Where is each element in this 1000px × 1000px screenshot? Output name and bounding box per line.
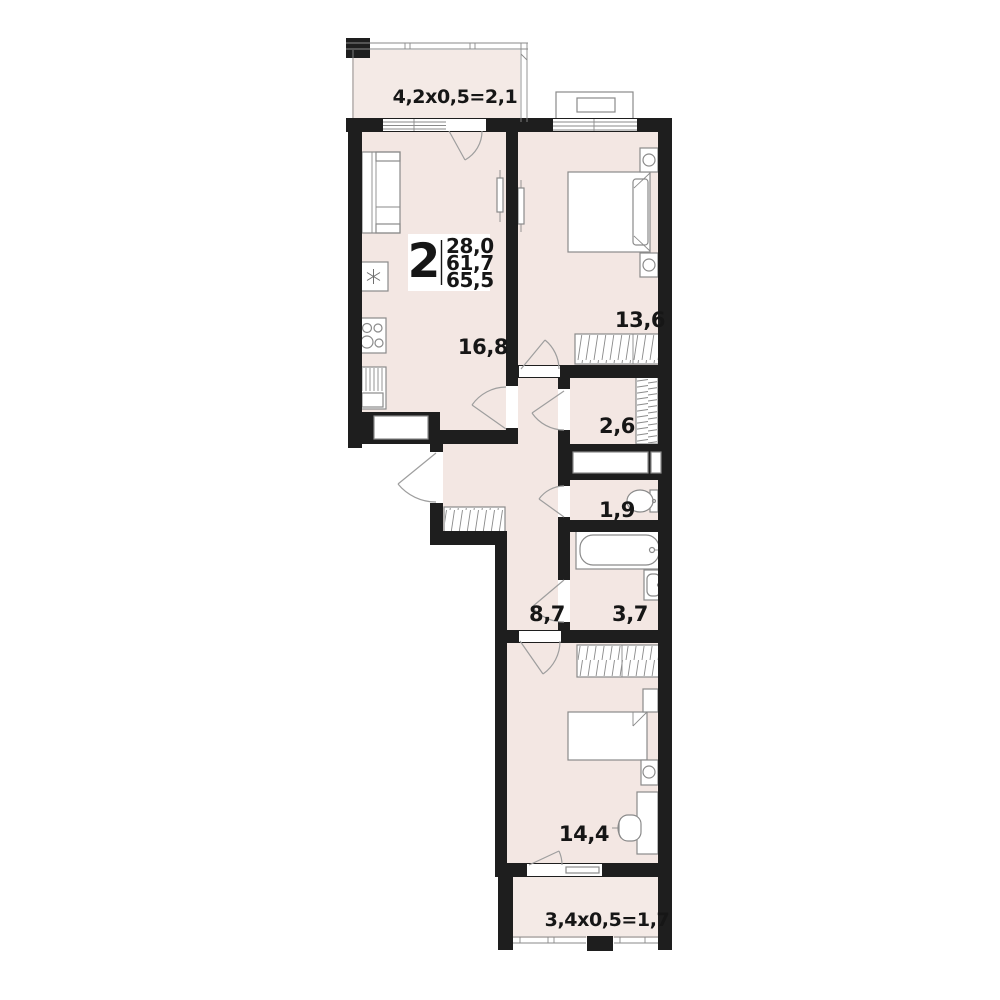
closet-shelving-icon xyxy=(636,377,658,444)
bedroom1-window-opening xyxy=(553,119,637,131)
duct-shaft xyxy=(573,452,648,473)
area-total: 65,5 xyxy=(446,268,494,292)
radiator-icon xyxy=(518,180,524,232)
kitchen-sink-icon xyxy=(359,367,386,409)
bedroom2-window-opening xyxy=(563,864,602,876)
room-count: 2 xyxy=(408,234,441,289)
hall-label: 8,7 xyxy=(529,602,565,626)
nightstand-icon xyxy=(640,253,658,277)
ac-unit-icon xyxy=(556,92,633,122)
balcony-bottom-label: 3,4x0,5=1,7 xyxy=(545,909,670,931)
floor-plan-svg: 4,2x0,5=2,1 16,8 13,6 2,6 1,9 8,7 3,7 14… xyxy=(0,0,1000,1000)
bedroom-2-label: 14,4 xyxy=(559,822,609,846)
floor-plan-canvas: 4,2x0,5=2,1 16,8 13,6 2,6 1,9 8,7 3,7 14… xyxy=(0,0,1000,1000)
bedroom2-balcony-door-opening xyxy=(527,864,563,876)
stove-icon xyxy=(359,318,386,353)
wardrobe-icon xyxy=(575,334,665,364)
nightstand-icon xyxy=(641,760,658,785)
bedroom2-door-opening xyxy=(519,631,561,642)
duct-shaft xyxy=(651,452,661,473)
fridge-icon xyxy=(359,262,388,291)
double-bed-icon xyxy=(568,172,650,252)
wardrobe-icon xyxy=(577,645,663,677)
entrance-door-opening xyxy=(430,452,443,503)
closet-label: 2,6 xyxy=(599,414,635,438)
bedroom-1-label: 13,6 xyxy=(615,308,665,332)
balcony-door-opening xyxy=(446,119,486,131)
closet-door-opening xyxy=(558,389,570,430)
living-kitchen-label: 16,8 xyxy=(458,335,508,359)
wc-label: 1,9 xyxy=(599,498,635,522)
living-door-opening xyxy=(506,386,518,428)
apartment-info-box: 2 28,0 61,7 65,5 xyxy=(408,234,494,292)
hall-wardrobe-icon xyxy=(444,507,505,532)
duct-shaft xyxy=(374,416,428,439)
wc-door-opening xyxy=(558,486,570,517)
sofa-icon xyxy=(362,152,400,233)
balcony-top-label: 4,2x0,5=2,1 xyxy=(393,86,518,108)
bathtub-icon xyxy=(576,531,663,569)
bedroom1-door-opening xyxy=(519,366,560,377)
nightstand-icon xyxy=(640,148,658,172)
bathroom-label: 3,7 xyxy=(612,602,648,626)
